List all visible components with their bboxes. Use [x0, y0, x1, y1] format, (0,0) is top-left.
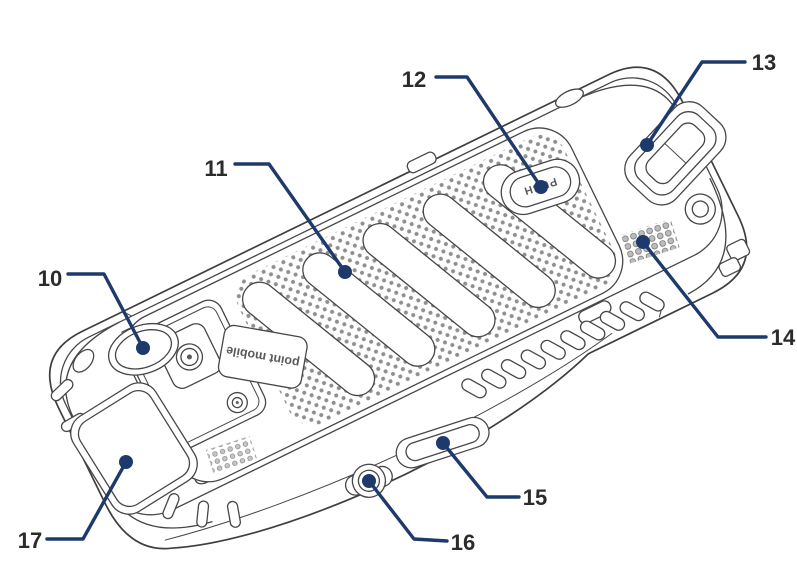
callout-10-number: 10	[38, 266, 62, 291]
callout-17-number: 17	[18, 528, 42, 553]
callout-15-number: 15	[523, 485, 547, 510]
diagram-canvas: PUSH point mobile	[0, 0, 797, 567]
phone-illustration: PUSH point mobile	[23, 29, 797, 567]
callout-14-number: 14	[771, 325, 796, 350]
callout-13-number: 13	[752, 50, 776, 75]
callout-12-number: 12	[402, 67, 426, 92]
device-rear-diagram: PUSH point mobile	[0, 0, 797, 567]
callout-11-number: 11	[204, 156, 227, 181]
callout-16-number: 16	[451, 530, 475, 555]
